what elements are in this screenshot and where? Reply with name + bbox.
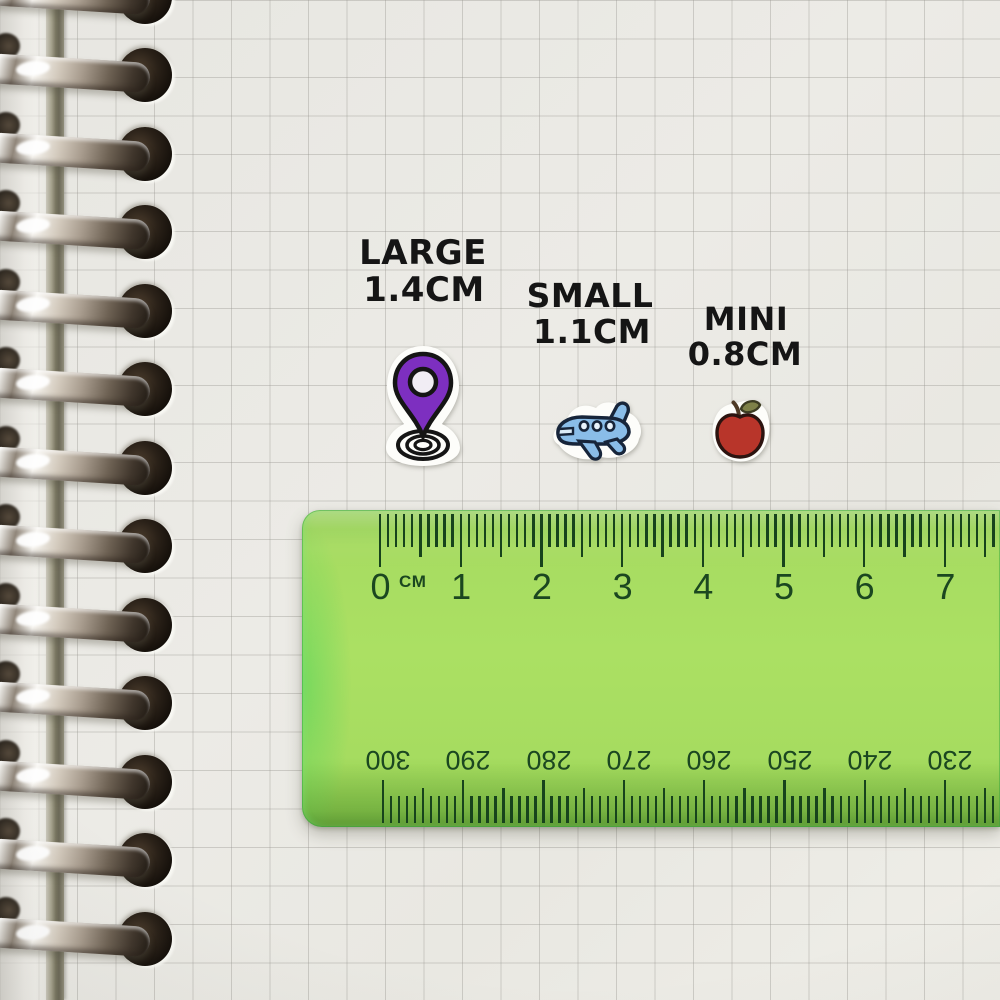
ruler-tick (677, 514, 679, 547)
ruler-tick (451, 514, 453, 547)
ruler-tick (790, 514, 792, 547)
ruler-tick (379, 514, 381, 567)
ruler-tick (992, 514, 994, 547)
ruler-tick (685, 514, 687, 547)
ruler-tick (390, 796, 392, 823)
binder-ring (0, 597, 195, 653)
ruler-tick (711, 796, 713, 823)
ruler-tick (566, 796, 568, 823)
binder-ring (0, 283, 195, 339)
binder-ring (0, 754, 195, 810)
ruler-tick (703, 780, 705, 823)
label-mini-size: 0.8CM (688, 335, 803, 373)
ruler-tick (629, 514, 631, 547)
label-large-name: LARGE (359, 233, 487, 273)
ruler-tick (419, 514, 421, 557)
ruler-tick (542, 780, 544, 823)
ruler-tick (645, 514, 647, 547)
binder-ring (0, 204, 195, 260)
ruler-tick (928, 796, 930, 823)
ruler-tick (743, 788, 745, 823)
ruler-tick (718, 514, 720, 547)
ruler-number: 260 (673, 744, 745, 775)
ruler-tick (871, 514, 873, 547)
ruler-tick (687, 796, 689, 823)
ruler-tick (952, 514, 954, 547)
ruler-tick (382, 780, 384, 823)
ruler-tick (403, 514, 405, 547)
binder-ring (0, 832, 195, 888)
ruler-tick (581, 514, 583, 557)
ruler-tick (774, 514, 776, 547)
ruler-tick (679, 796, 681, 823)
ruler-tick (476, 514, 478, 547)
ruler-tick (750, 514, 752, 547)
ruler-number: 290 (432, 744, 504, 775)
ruler-tick (575, 796, 577, 823)
ruler-tick (462, 780, 464, 823)
ruler-tick (807, 514, 809, 547)
ruler-tick (848, 796, 850, 823)
ruler-number: 270 (593, 744, 665, 775)
ruler-tick (422, 788, 424, 823)
ruler-tick (823, 788, 825, 823)
binder-ring (0, 440, 195, 496)
ruler-tick (766, 514, 768, 547)
ruler-number: 3 (590, 566, 654, 608)
ruler-tick (454, 796, 456, 823)
ruler-tick (443, 514, 445, 547)
ruler-tick (484, 514, 486, 547)
ruler-tick (791, 796, 793, 823)
ruler-tick (597, 514, 599, 547)
ruler-tick (387, 514, 389, 547)
ruler-number: 280 (513, 744, 585, 775)
ruler-tick (605, 514, 607, 547)
ruler-tick (807, 796, 809, 823)
ruler-tick (775, 796, 777, 823)
ruler-tick (944, 514, 946, 567)
ruler-tick (919, 514, 921, 547)
ruler-tick (960, 514, 962, 547)
ruler-tick (637, 514, 639, 547)
ruler-number: 5 (752, 566, 816, 608)
ruler-tick (694, 514, 696, 547)
ruler-tick (508, 514, 510, 547)
ruler-tick (661, 514, 663, 557)
ruler-tick (615, 796, 617, 823)
ruler-tick (663, 788, 665, 823)
ruler-tick (895, 514, 897, 547)
ruler-number: 250 (754, 744, 826, 775)
apple-sticker (708, 396, 772, 464)
ruler-tick (815, 796, 817, 823)
ruler-tick (855, 514, 857, 547)
ruler-tick (888, 796, 890, 823)
ring-band (0, 0, 151, 14)
ruler-tick (446, 796, 448, 823)
notebook-photo: LARGE 1.4CM SMALL 1.1CM MINI 0.8CM 01234… (0, 0, 1000, 1000)
ruler-tick (952, 796, 954, 823)
label-large-size: 1.4CM (363, 270, 485, 310)
ruler-tick (572, 514, 574, 547)
ruler-tick (904, 788, 906, 823)
ruler-tick (669, 514, 671, 547)
ruler-tick (903, 514, 905, 557)
ruler-tick (976, 514, 978, 547)
ruler-tick (524, 514, 526, 547)
ruler-tick (607, 796, 609, 823)
binder-ring (0, 361, 195, 417)
ruler-tick (726, 514, 728, 547)
ruler-tick (492, 514, 494, 547)
label-small-size: 1.1CM (533, 312, 651, 351)
ruler-tick (734, 514, 736, 547)
binder-ring (0, 0, 195, 25)
ruler-tick (992, 796, 994, 823)
ruler-number: 6 (832, 566, 896, 608)
ruler-tick (839, 514, 841, 547)
ruler-tick (880, 796, 882, 823)
binder-ring (0, 518, 195, 574)
ruler-tick (438, 796, 440, 823)
ruler-tick (414, 796, 416, 823)
ruler-tick (655, 796, 657, 823)
ruler-tick (856, 796, 858, 823)
ruler-tick (534, 796, 536, 823)
ruler-tick (984, 514, 986, 557)
ruler-tick (944, 780, 946, 823)
ruler-tick (936, 796, 938, 823)
ruler-number: 230 (914, 744, 986, 775)
ruler-tick (478, 796, 480, 823)
ruler-tick (623, 780, 625, 823)
ruler-tick (502, 788, 504, 823)
ruler-tick (864, 780, 866, 823)
ruler-number: 300 (352, 744, 424, 775)
ruler-tick (863, 514, 865, 567)
binder-ring (0, 47, 195, 103)
ruler-tick (984, 788, 986, 823)
ruler-number: 2 (509, 566, 573, 608)
ruler-tick (599, 796, 601, 823)
ruler-tick (406, 796, 408, 823)
pin-hole (410, 369, 436, 395)
ruler-tick (719, 796, 721, 823)
ruler-tick (558, 796, 560, 823)
ruler-tick (510, 796, 512, 823)
ruler-tick (887, 514, 889, 547)
ruler-number: 7 (913, 566, 977, 608)
ruler-tick (799, 796, 801, 823)
ruler-number: 4 (671, 566, 735, 608)
ruler-tick (782, 514, 784, 567)
ruler-tick (540, 514, 542, 567)
ruler-tick (751, 796, 753, 823)
ruler-scale: 01234567CM300290280270260250240230 (302, 510, 1000, 827)
ruler-tick (427, 514, 429, 547)
ruler-tick (516, 514, 518, 547)
ruler-tick (621, 514, 623, 567)
label-mini-name: MINI (704, 300, 788, 338)
ruler-tick (976, 796, 978, 823)
ruler-tick (494, 796, 496, 823)
ruler-tick (556, 514, 558, 547)
ruler-tick (591, 796, 593, 823)
ruler-tick (831, 514, 833, 547)
ruler-tick (968, 796, 970, 823)
ruler-tick (767, 796, 769, 823)
binder-ring (0, 126, 195, 182)
ruler-tick (430, 796, 432, 823)
ruler-tick (758, 514, 760, 547)
ruler-tick (468, 514, 470, 547)
ruler-tick (710, 514, 712, 547)
ruler-tick (831, 796, 833, 823)
ruler-tick (742, 514, 744, 557)
ruler-tick (759, 796, 761, 823)
ruler-tick (911, 514, 913, 547)
ruler-tick (671, 796, 673, 823)
ruler-tick (486, 796, 488, 823)
ruler-tick (783, 780, 785, 823)
ruler-tick (395, 514, 397, 547)
ruler-tick (526, 796, 528, 823)
ruler-number: 240 (834, 744, 906, 775)
plane-nose (558, 428, 573, 435)
ruler-tick (936, 514, 938, 547)
ruler-tick (532, 514, 534, 547)
ruler-tick (550, 796, 552, 823)
ruler-tick (695, 796, 697, 823)
ruler-tick (583, 788, 585, 823)
ruler-number: 1 (429, 566, 493, 608)
binder-ring (0, 911, 195, 967)
ruler-tick (896, 796, 898, 823)
ruler-tick (435, 514, 437, 547)
apple-body (717, 415, 763, 457)
ruler-tick (872, 796, 874, 823)
label-small-name: SMALL (527, 276, 654, 315)
ruler-tick (653, 514, 655, 547)
ruler-tick (840, 796, 842, 823)
ruler-tick (702, 514, 704, 567)
ruler-tick (960, 796, 962, 823)
binder-ring (0, 675, 195, 731)
ruler-tick (847, 514, 849, 547)
ruler-tick (639, 796, 641, 823)
ruler-tick (815, 514, 817, 547)
ruler-tick (460, 514, 462, 567)
ruler-tick (411, 514, 413, 547)
ruler-tick (920, 796, 922, 823)
ruler-tick (647, 796, 649, 823)
ruler-tick (589, 514, 591, 547)
ruler: 01234567CM300290280270260250240230 (302, 510, 1000, 827)
ruler-tick (398, 796, 400, 823)
ruler-tick (798, 514, 800, 547)
ruler-tick (613, 514, 615, 547)
ruler-tick (500, 514, 502, 557)
ruler-tick (564, 514, 566, 547)
ruler-tick (727, 796, 729, 823)
ruler-tick (968, 514, 970, 547)
ruler-tick (548, 514, 550, 547)
ruler-tick (735, 796, 737, 823)
location-pin-sticker (383, 344, 463, 468)
ruler-tick (470, 796, 472, 823)
airplane-sticker (543, 397, 647, 465)
ruler-tick (518, 796, 520, 823)
ruler-tick (928, 514, 930, 547)
ruler-tick (912, 796, 914, 823)
ruler-tick (879, 514, 881, 547)
ruler-unit: CM (399, 572, 426, 592)
ruler-tick (823, 514, 825, 557)
ruler-tick (631, 796, 633, 823)
